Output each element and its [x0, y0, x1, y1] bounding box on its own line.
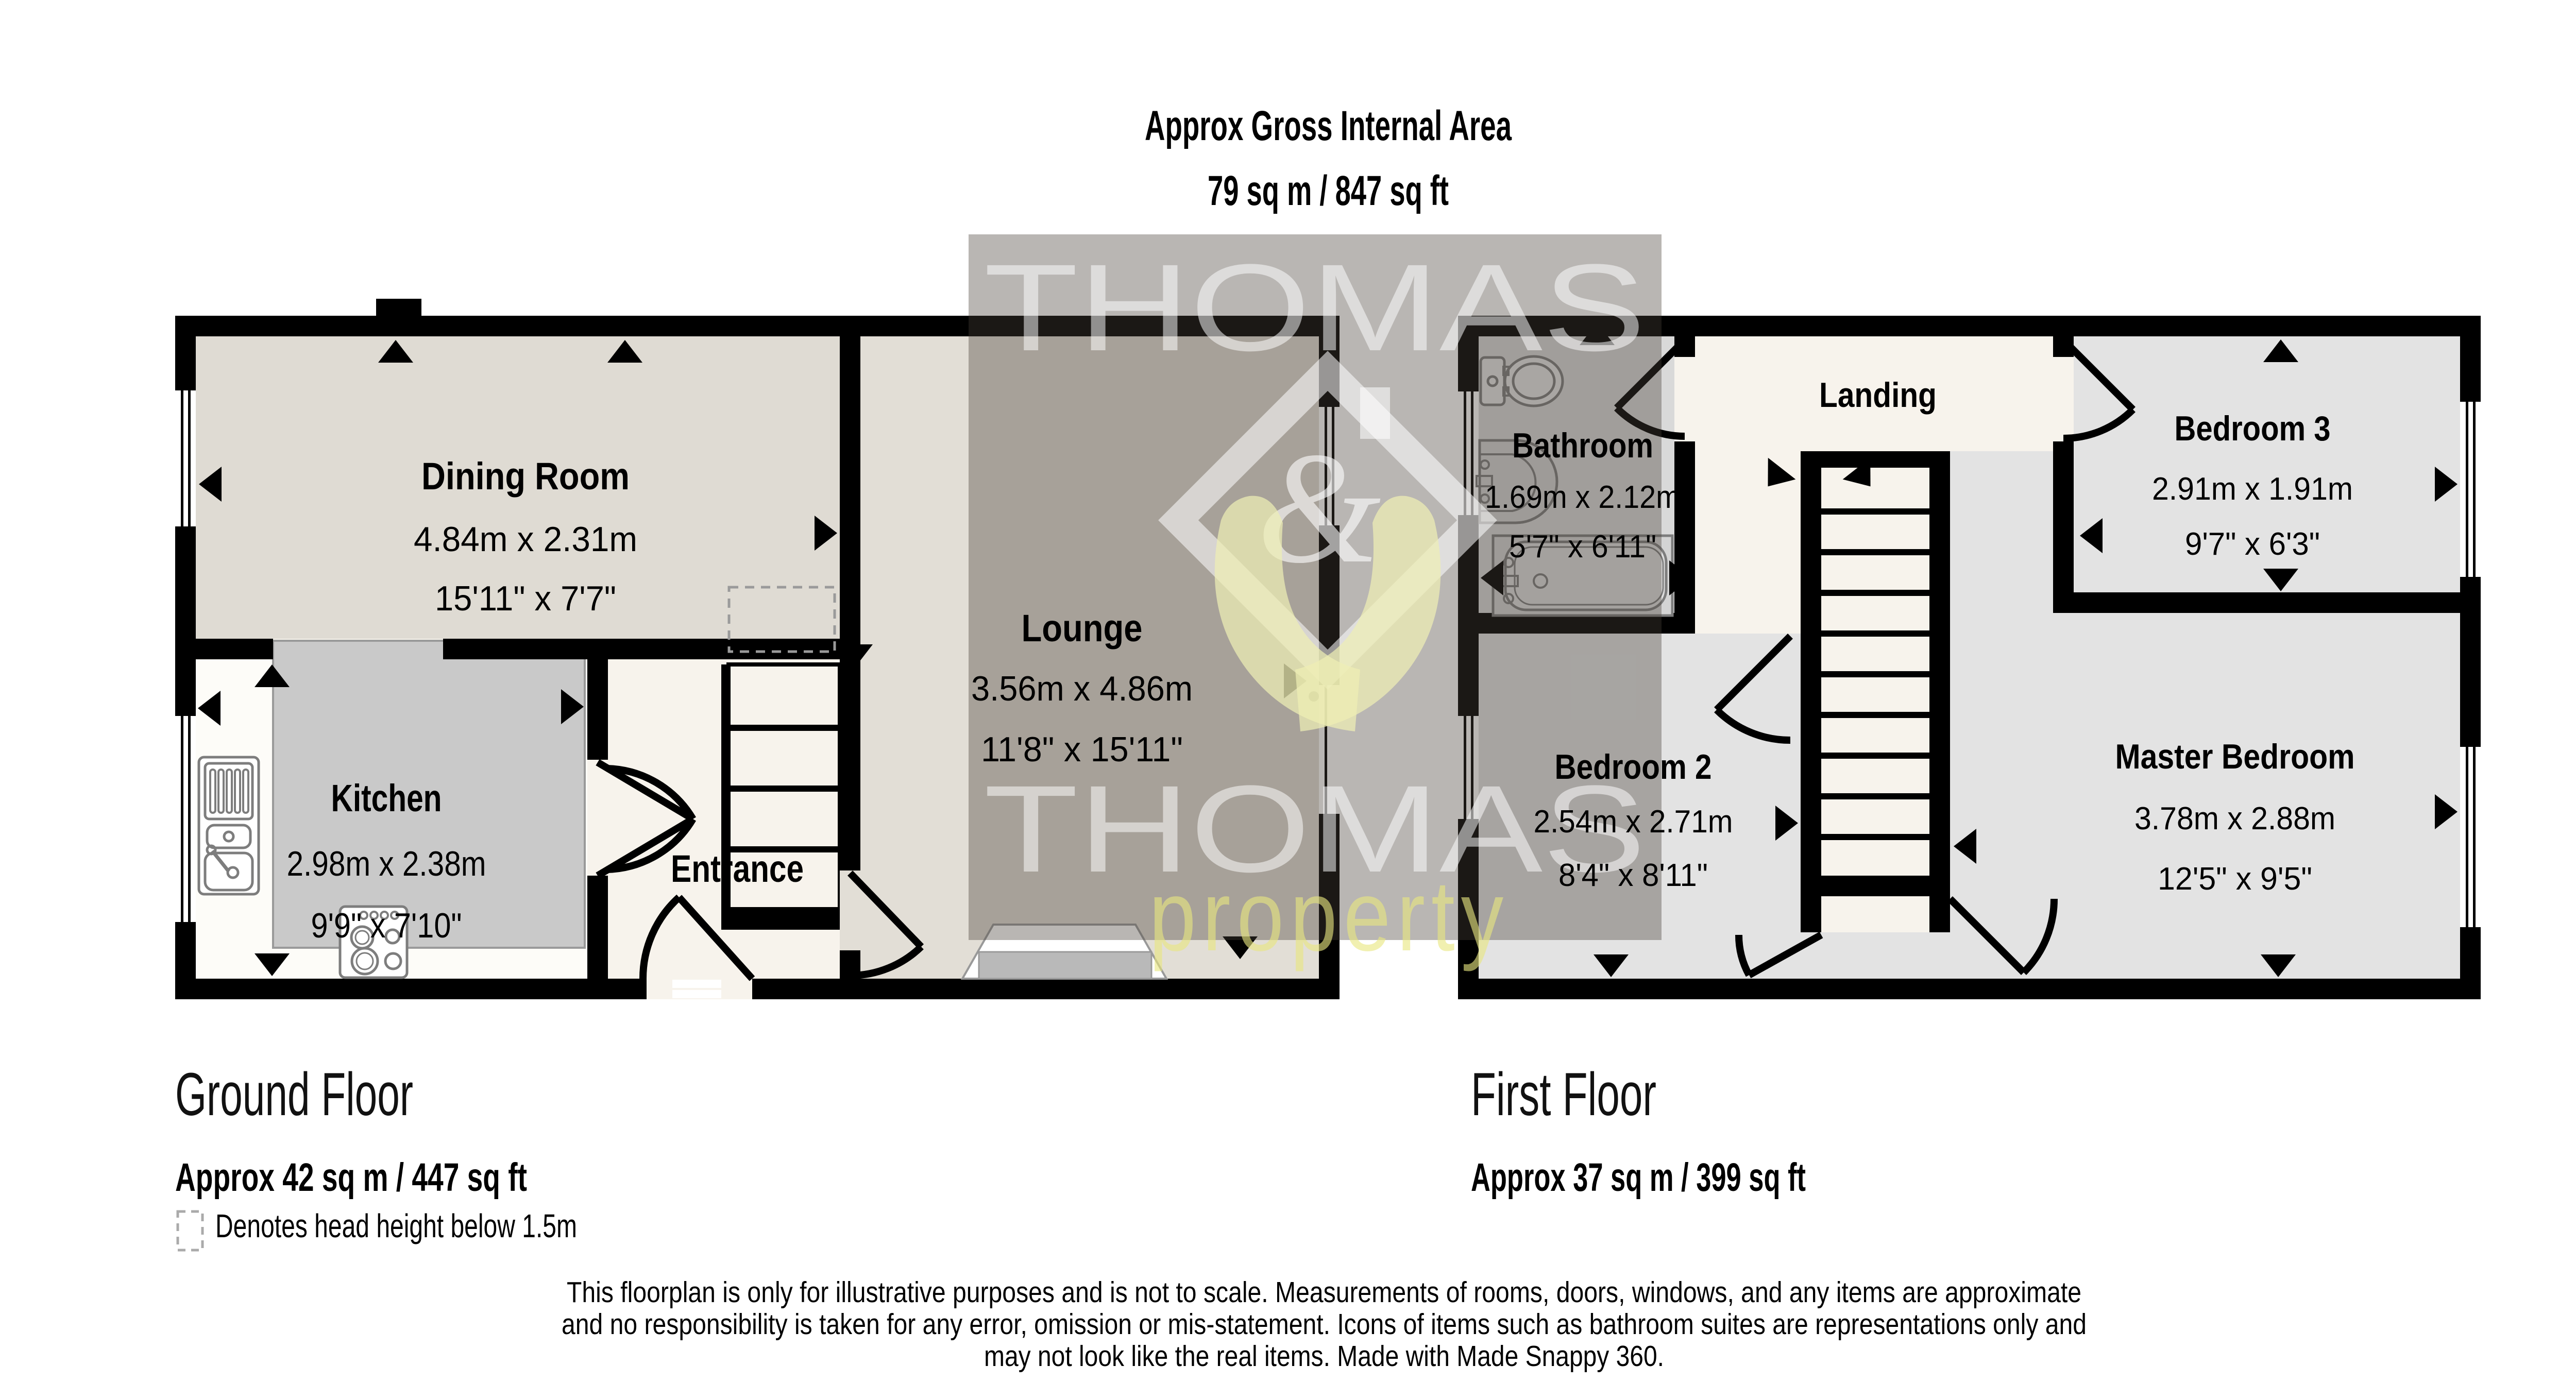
first-floor-caption: First Floor	[1471, 1061, 1656, 1129]
room-name: Entrance	[671, 847, 804, 890]
front-step	[672, 990, 721, 998]
kitchen-door-opening	[587, 760, 608, 876]
first-floor-area-caption: Approx 37 sq m / 399 sq ft	[1471, 1155, 1806, 1200]
disclaimer-line-3: may not look like the real items. Made w…	[984, 1340, 1664, 1373]
kitchen-sink-icon	[199, 757, 259, 894]
first-floor-stairs-icon	[1801, 451, 1950, 932]
room-metric: 1.69m x 2.12m	[1485, 480, 1681, 515]
ground-floor-caption: Ground Floor	[175, 1061, 413, 1129]
dining-window	[175, 390, 196, 526]
chimney-breast	[376, 299, 421, 336]
head-height-legend: Denotes head height below 1.5m	[178, 1207, 577, 1250]
dining-room-label: Dining Room 4.84m x 2.31m 15'11" x 7'7"	[414, 455, 637, 618]
gross-internal-area-title: Approx Gross Internal Area 79 sq m / 847…	[1145, 103, 1512, 214]
disclaimer-line-2: and no responsibility is taken for any e…	[562, 1308, 2087, 1341]
room-name: Landing	[1819, 375, 1937, 415]
room-imperial: 15'11" x 7'7"	[435, 579, 616, 618]
watermark: THOMAS & THOMAS property	[969, 234, 1662, 972]
disclaimer-line-1: This floorplan is only for illustrative …	[567, 1276, 2081, 1309]
room-metric: 4.84m x 2.31m	[414, 520, 637, 559]
watermark-word-top: THOMAS	[984, 238, 1646, 377]
title-area-text: 79 sq m / 847 sq ft	[1208, 167, 1449, 214]
room-imperial: 9'7" x 6'3"	[2185, 526, 2320, 562]
room-name: Bedroom 2	[1555, 747, 1712, 787]
room-metric: 2.98m x 2.38m	[287, 844, 486, 883]
bedroom3-window	[2460, 402, 2481, 577]
floorplan-canvas: Approx Gross Internal Area 79 sq m / 847…	[0, 0, 2576, 1383]
room-metric: 2.54m x 2.71m	[1534, 804, 1733, 840]
ground-floor-area-caption: Approx 42 sq m / 447 sq ft	[175, 1155, 527, 1200]
room-metric: 3.78m x 2.88m	[2134, 801, 2335, 836]
room-metric: 2.91m x 1.91m	[2152, 471, 2353, 507]
front-step	[672, 980, 721, 988]
head-height-legend-text: Denotes head height below 1.5m	[215, 1207, 577, 1244]
room-imperial: 12'5" x 9'5"	[2158, 861, 2312, 897]
floor-captions: Ground Floor Approx 42 sq m / 447 sq ft …	[175, 1061, 1806, 1200]
room-name: Kitchen	[331, 777, 442, 819]
room-name: Dining Room	[421, 455, 630, 498]
title-text: Approx Gross Internal Area	[1145, 103, 1512, 149]
floorplan-page: Approx Gross Internal Area 79 sq m / 847…	[0, 0, 2576, 1383]
room-imperial: 5'7" x 6'11"	[1509, 529, 1656, 565]
kitchen-window	[175, 716, 196, 922]
room-name: Bathroom	[1512, 426, 1653, 465]
landing-label: Landing	[1819, 375, 1937, 415]
bathroom-label: Bathroom 1.69m x 2.12m 5'7" x 6'11"	[1485, 426, 1681, 565]
bedroom2-label: Bedroom 2 2.54m x 2.71m 8'4" x 8'11"	[1534, 747, 1733, 893]
room-imperial: 8'4" x 8'11"	[1558, 858, 1708, 893]
entrance-label: Entrance	[671, 847, 804, 890]
room-imperial: 11'8" x 15'11"	[981, 730, 1183, 769]
disclaimer: This floorplan is only for illustrative …	[562, 1276, 2087, 1373]
bedroom3-door-opening	[2053, 357, 2074, 441]
room-name: Bedroom 3	[2175, 409, 2331, 448]
bathroom-door-opening	[1674, 357, 1695, 441]
watermark-word-bottom: property	[1149, 860, 1510, 972]
room-imperial: 9'9" x 7'10"	[311, 906, 462, 945]
room-name: Master Bedroom	[2115, 737, 2355, 776]
room-name: Lounge	[1022, 607, 1143, 650]
master-bedroom-window	[2460, 747, 2481, 927]
room-metric: 3.56m x 4.86m	[971, 669, 1193, 708]
head-height-legend-swatch	[178, 1211, 202, 1250]
